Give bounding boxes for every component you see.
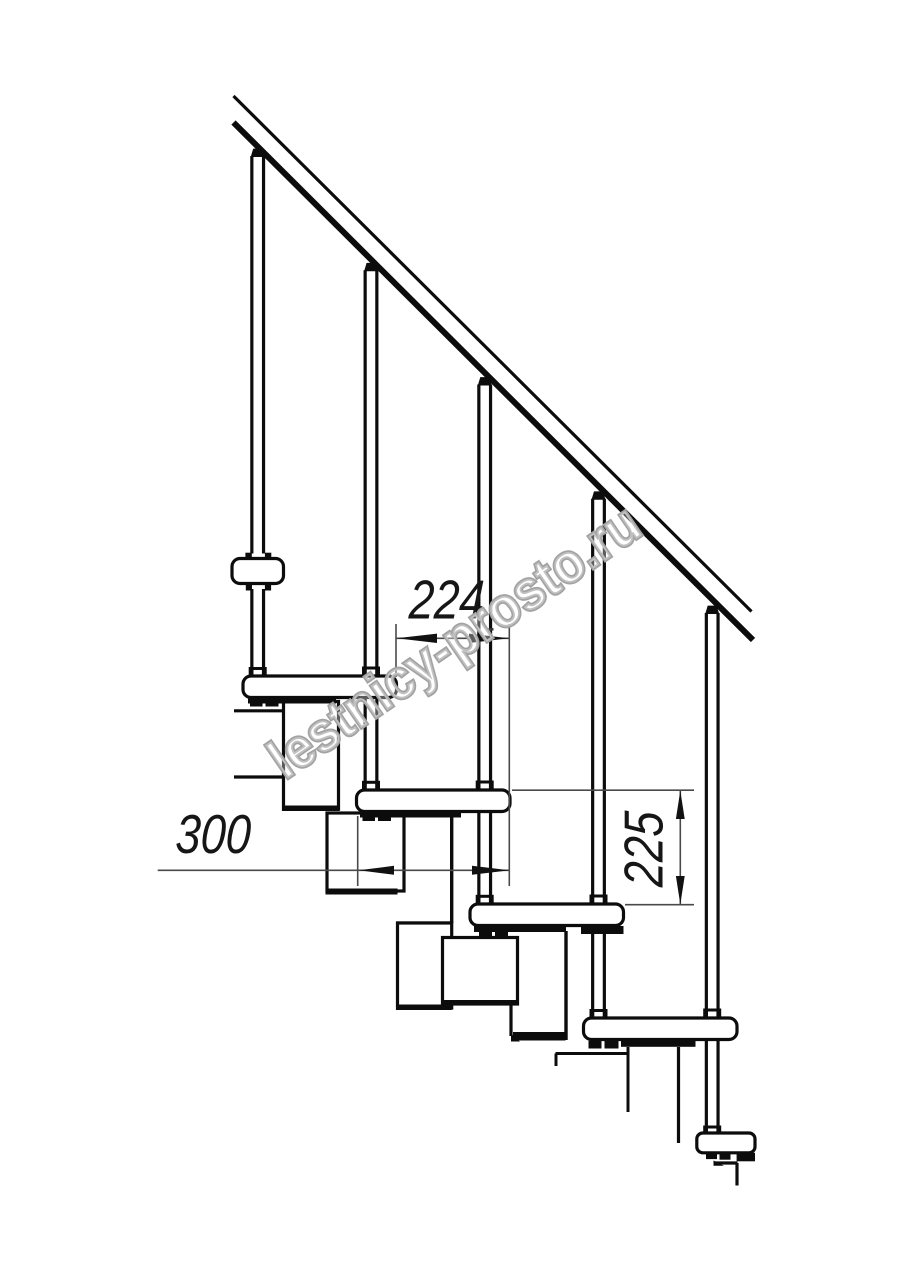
- svg-text:300: 300: [174, 803, 252, 865]
- svg-text:225: 225: [612, 809, 674, 889]
